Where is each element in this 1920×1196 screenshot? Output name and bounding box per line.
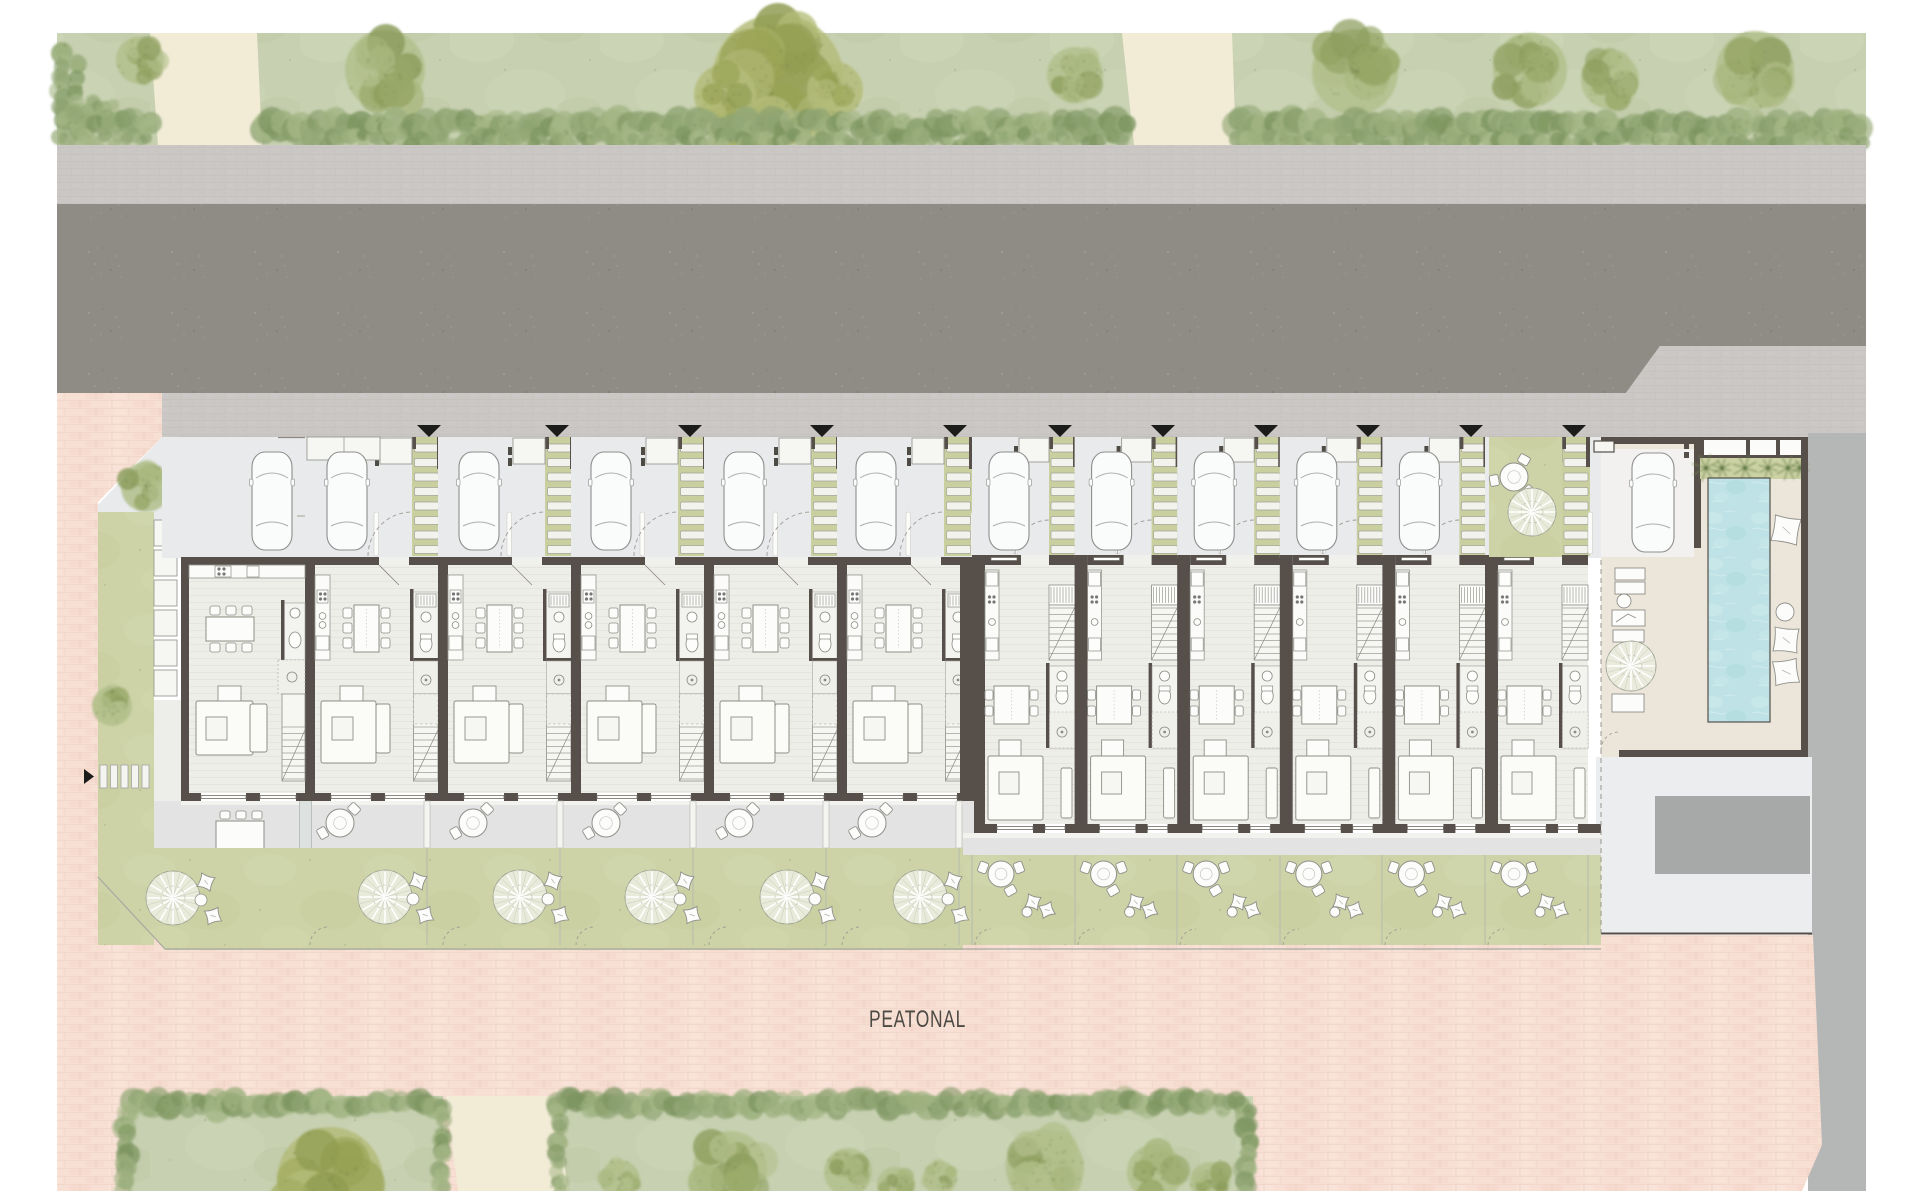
- svg-text:PEATONAL: PEATONAL: [869, 1006, 966, 1033]
